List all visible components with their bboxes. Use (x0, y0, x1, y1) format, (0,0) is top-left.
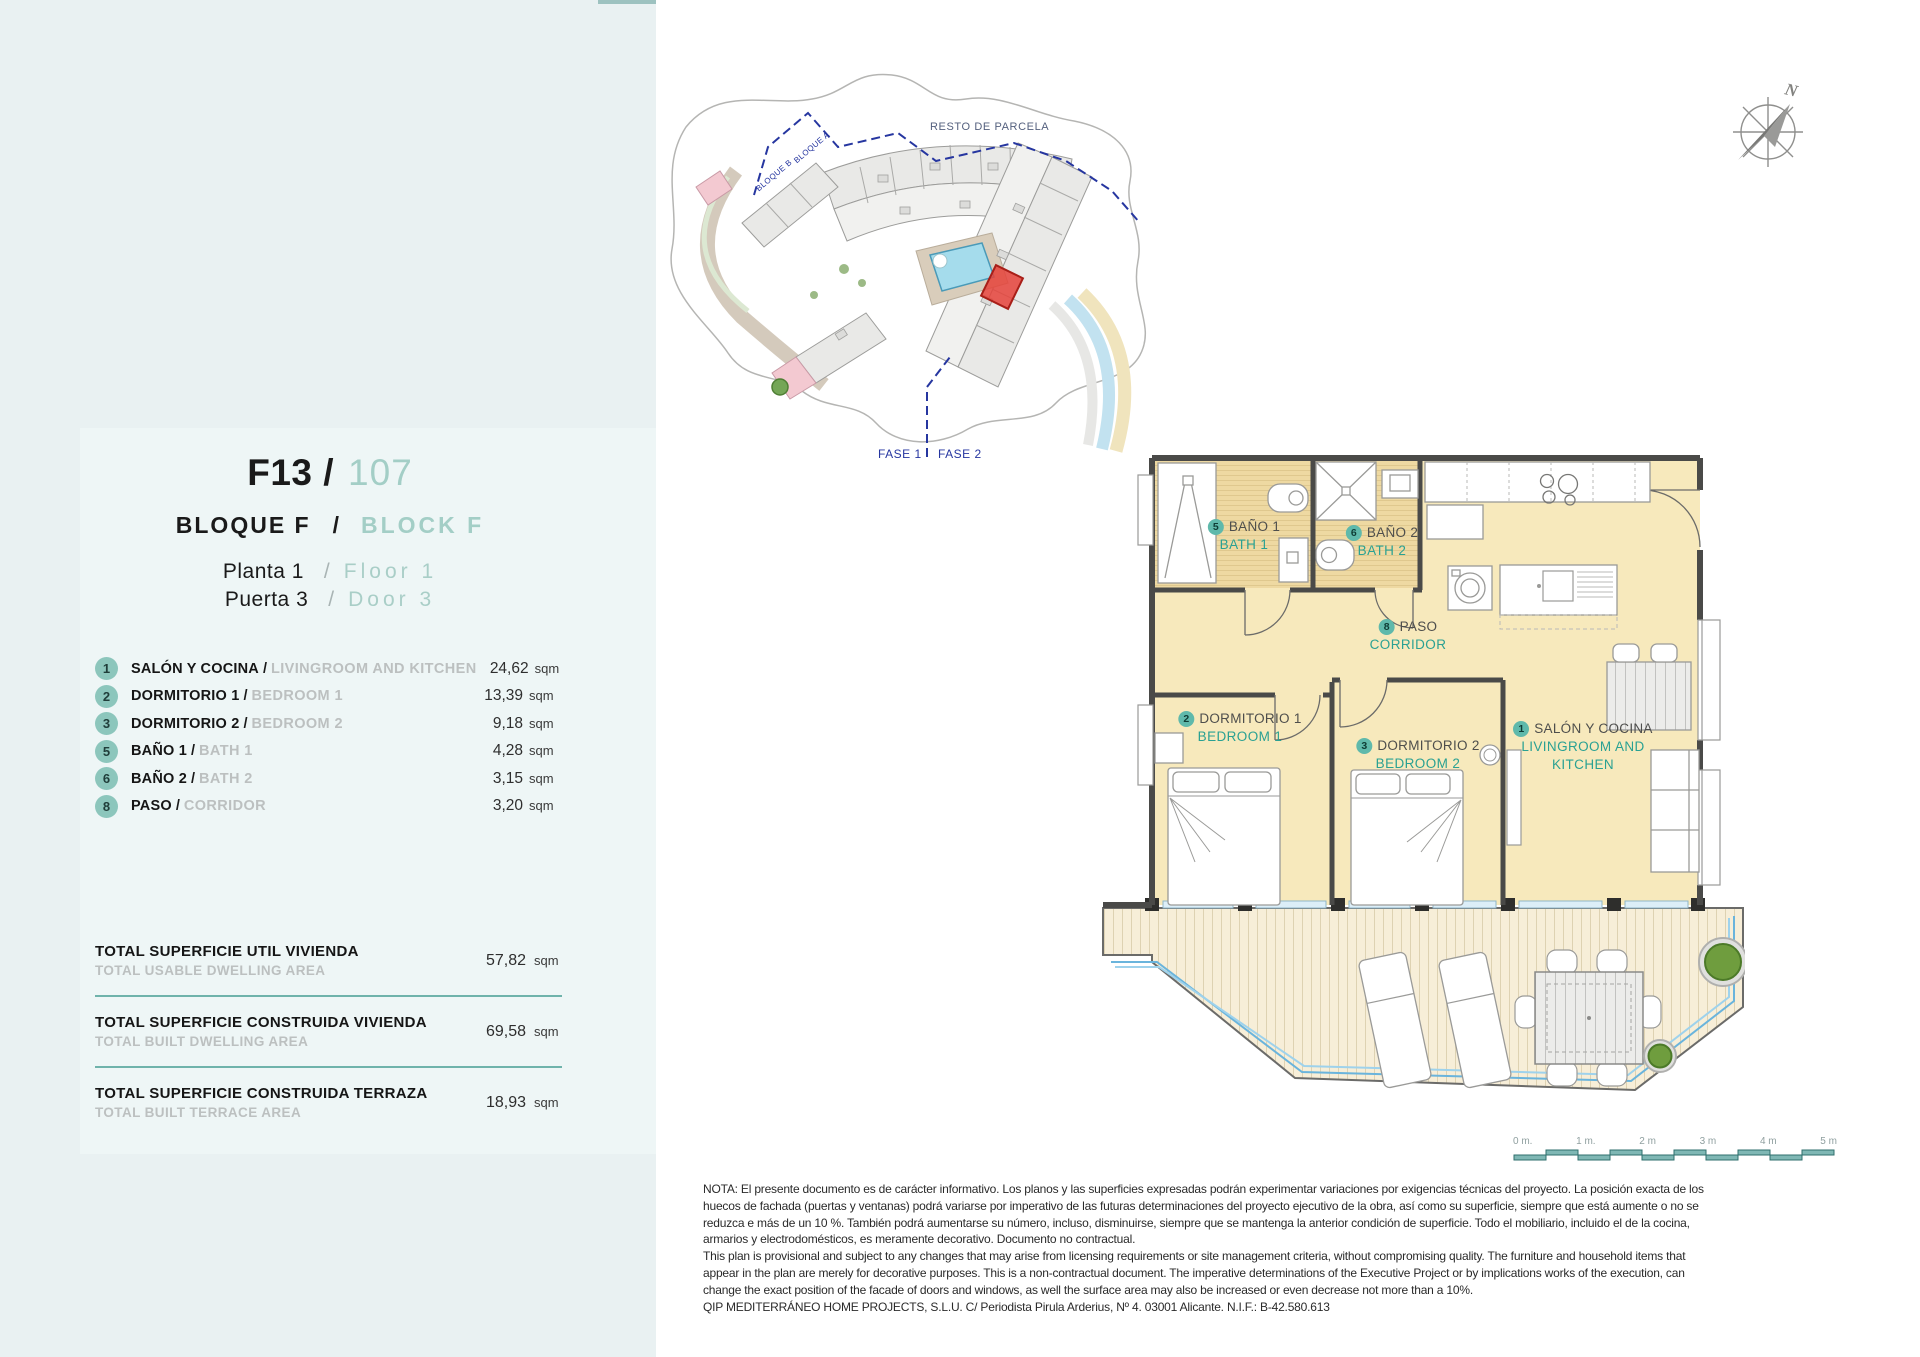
compass-rose-icon: N (1728, 70, 1818, 175)
block-name-en: BLOCK F (361, 512, 484, 539)
block-name-es: BLOQUE F (176, 512, 311, 539)
unit-code: F13 / (247, 452, 334, 494)
site-label-fase-2: FASE 2 (938, 447, 982, 461)
room-number-badge: 8 (95, 795, 118, 818)
room-number-badge: 5 (95, 740, 118, 763)
scale-bar-graphic (1513, 1148, 1837, 1162)
divider (95, 995, 562, 997)
panel-top-accent (598, 0, 656, 4)
scale-bar-labels: 0 m. 1 m. 2 m 3 m 4 m 5 m (1513, 1136, 1837, 1147)
room-row-bath1: 5 BAÑO 1 / BATH 1 4,28sqm (95, 738, 557, 766)
totals-section: TOTAL SUPERFICIE UTIL VIVIENDA TOTAL USA… (95, 943, 562, 1120)
total-built-area: TOTAL SUPERFICIE CONSTRUIDA VIVIENDA TOT… (95, 1014, 562, 1049)
info-panel: F13 / 107 BLOQUE F / BLOCK F Planta 1 / … (0, 0, 656, 1357)
site-plan-map: RESTO DE PARCELA BLOQUE A BLOQUE B FASE … (600, 55, 1160, 460)
disclaimer-line: reduzca e más de un 10 %. También podrá … (703, 1215, 1853, 1232)
site-label-fase-1: FASE 1 (878, 447, 922, 461)
room-number-badge: 1 (95, 657, 118, 680)
room-row-bedroom2: 3 DORMITORIO 2 / BEDROOM 2 9,18sqm (95, 710, 557, 738)
floor-plan-drawing (1095, 450, 1745, 1095)
door-sep: / (328, 588, 334, 612)
divider (95, 1066, 562, 1068)
site-plan-drawing (600, 55, 1160, 460)
total-usable-area: TOTAL SUPERFICIE UTIL VIVIENDA TOTAL USA… (95, 943, 562, 978)
room-row-livingroom: 1 SALÓN Y COCINA / LIVINGROOM AND KITCHE… (95, 655, 557, 683)
room-number-badge: 6 (95, 767, 118, 790)
door-en: Door 3 (348, 588, 435, 612)
floor-sep: / (324, 560, 330, 584)
floor-plan (1095, 450, 1745, 1095)
room-row-bath2: 6 BAÑO 2 / BATH 2 3,15sqm (95, 765, 557, 793)
room-number-badge: 2 (95, 685, 118, 708)
floor-es: Planta 1 (223, 560, 304, 584)
room-row-bedroom1: 2 DORMITORIO 1 / BEDROOM 1 13,39sqm (95, 683, 557, 711)
room-row-corridor: 8 PASO / CORRIDOR 3,20sqm (95, 793, 557, 821)
disclaimer-line: armarios y electrodomésticos, es meramen… (703, 1231, 1853, 1248)
disclaimer-line: This plan is provisional and subject to … (703, 1248, 1853, 1265)
plan-sheet: F13 / 107 BLOQUE F / BLOCK F Planta 1 / … (0, 0, 1920, 1357)
disclaimer-line: appear in the plan are merely for decora… (703, 1265, 1853, 1282)
legal-disclaimer: NOTA: El presente documento es de caráct… (703, 1181, 1853, 1315)
block-sep: / (333, 512, 339, 539)
floor-row: Planta 1 / Floor 1 (100, 560, 560, 584)
unit-title: F13 / 107 (100, 452, 560, 494)
scale-bar: 0 m. 1 m. 2 m 3 m 4 m 5 m (1513, 1136, 1837, 1162)
door-row: Puerta 3 / Door 3 (100, 588, 560, 612)
block-row: BLOQUE F / BLOCK F (100, 512, 560, 539)
site-label-resto-de-parcela: RESTO DE PARCELA (930, 121, 1049, 133)
unit-number: 107 (348, 452, 413, 494)
disclaimer-line: NOTA: El presente documento es de caráct… (703, 1181, 1853, 1198)
disclaimer-line: huecos de fachada (puertas y ventanas) p… (703, 1198, 1853, 1215)
room-list: 1 SALÓN Y COCINA / LIVINGROOM AND KITCHE… (95, 655, 557, 820)
door-es: Puerta 3 (225, 588, 308, 612)
floor-en: Floor 1 (344, 560, 437, 584)
total-terrace-area: TOTAL SUPERFICIE CONSTRUIDA TERRAZA TOTA… (95, 1085, 562, 1120)
compass-north-letter: N (1782, 79, 1800, 101)
north-compass: N (1728, 70, 1818, 175)
disclaimer-line: change the exact position of the facade … (703, 1282, 1853, 1299)
room-number-badge: 3 (95, 712, 118, 735)
company-info-line: QIP MEDITERRÁNEO HOME PROJECTS, S.L.U. C… (703, 1299, 1853, 1316)
